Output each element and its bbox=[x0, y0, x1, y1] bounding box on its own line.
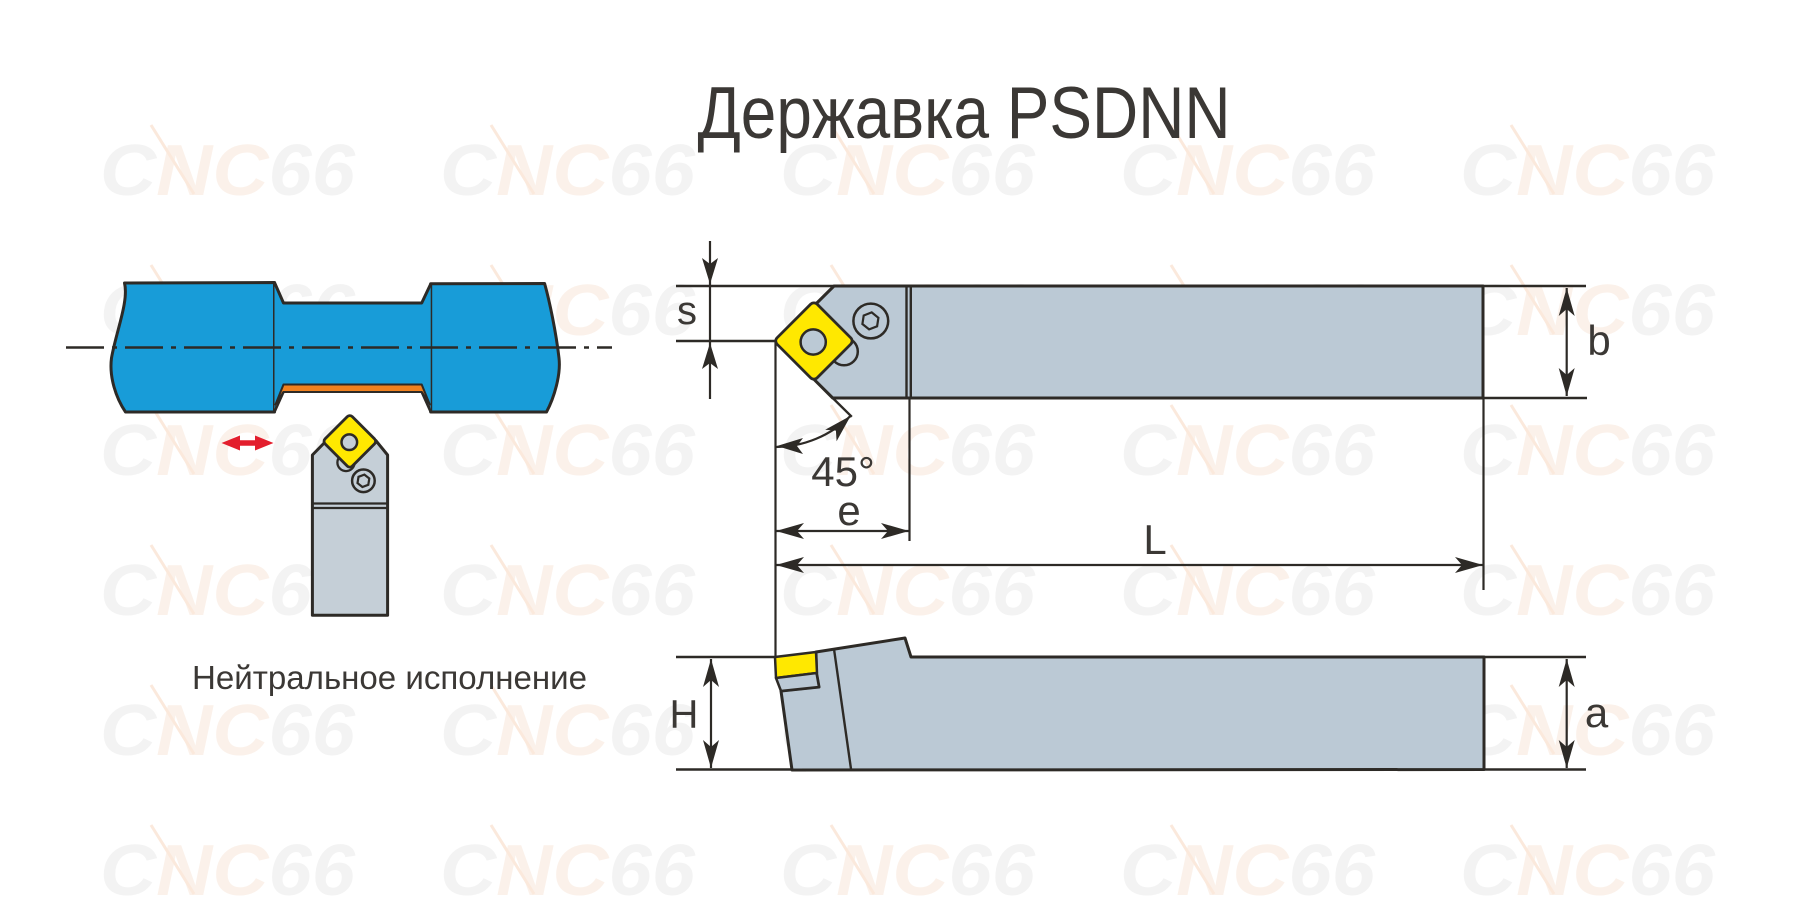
svg-text:CNC66: CNC66 bbox=[440, 131, 696, 211]
svg-text:CNC66: CNC66 bbox=[100, 131, 356, 211]
svg-text:CNC66: CNC66 bbox=[780, 551, 1036, 631]
svg-text:L: L bbox=[1143, 516, 1166, 563]
svg-text:CNC66: CNC66 bbox=[440, 411, 696, 491]
svg-text:H: H bbox=[670, 693, 699, 737]
svg-text:CNC66: CNC66 bbox=[1460, 131, 1716, 211]
svg-text:a: a bbox=[1585, 689, 1609, 736]
svg-text:CNC66: CNC66 bbox=[100, 691, 356, 771]
svg-text:Державка PSDNN: Державка PSDNN bbox=[698, 73, 1231, 154]
svg-text:CNC66: CNC66 bbox=[780, 831, 1036, 911]
svg-text:CNC66: CNC66 bbox=[1460, 551, 1716, 631]
svg-text:s: s bbox=[677, 289, 697, 333]
svg-text:CNC66: CNC66 bbox=[440, 551, 696, 631]
svg-text:CNC66: CNC66 bbox=[100, 831, 356, 911]
svg-text:CNC66: CNC66 bbox=[1120, 411, 1376, 491]
svg-text:e: e bbox=[837, 487, 860, 534]
svg-text:CNC66: CNC66 bbox=[1460, 831, 1716, 911]
svg-text:CNC66: CNC66 bbox=[1120, 551, 1376, 631]
svg-text:CNC66: CNC66 bbox=[1120, 831, 1376, 911]
svg-text:CNC66: CNC66 bbox=[440, 831, 696, 911]
svg-text:CNC66: CNC66 bbox=[440, 691, 696, 771]
svg-text:b: b bbox=[1587, 317, 1610, 364]
svg-text:Нейтральное исполнение: Нейтральное исполнение bbox=[192, 659, 587, 696]
svg-text:CNC66: CNC66 bbox=[1460, 411, 1716, 491]
